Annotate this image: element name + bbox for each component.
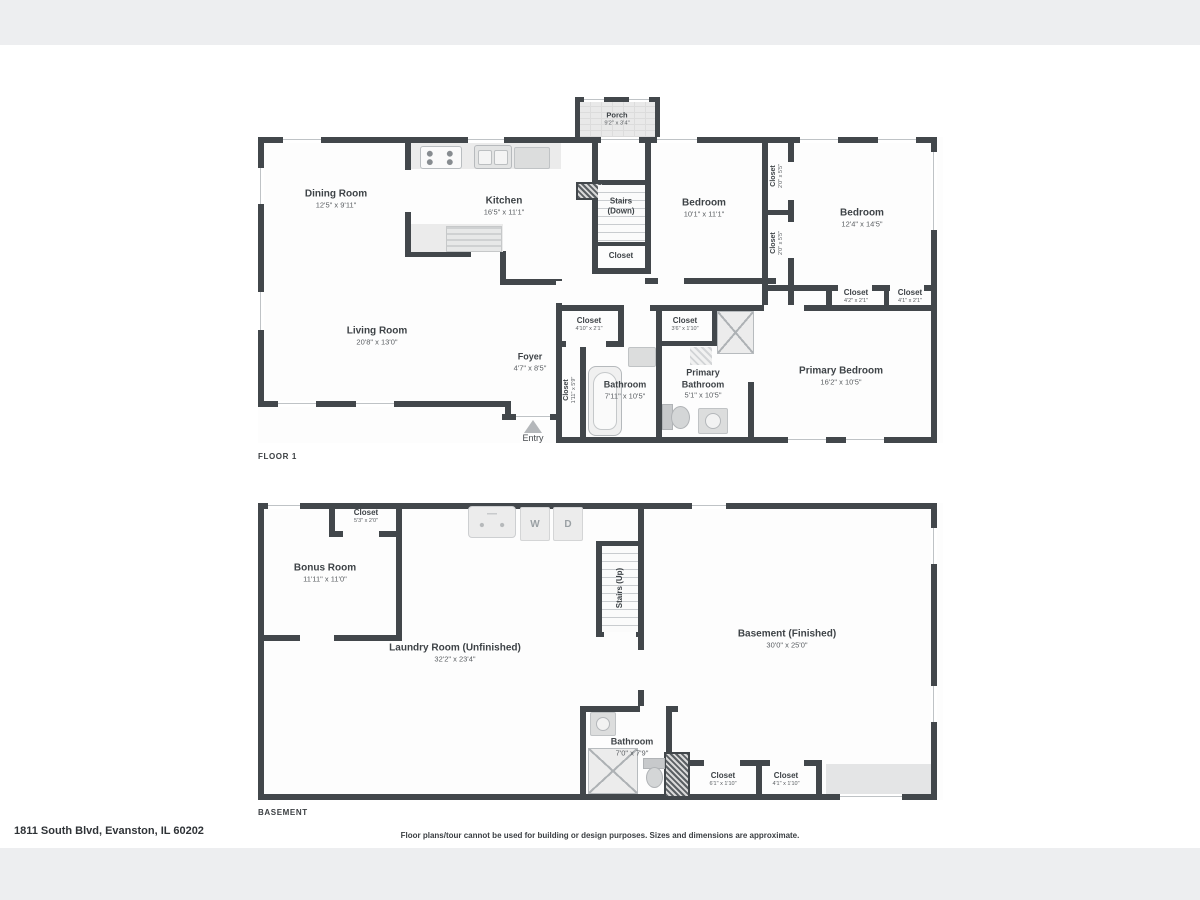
window <box>846 437 884 443</box>
sink-basin <box>596 717 610 731</box>
window <box>629 97 649 102</box>
window <box>788 437 826 443</box>
window <box>878 137 916 143</box>
room-label-bonus: Bonus Room 11'11" x 11'0" <box>294 562 356 585</box>
wall-segment <box>816 760 822 800</box>
room-label-bedroom2: Bedroom 12'4" x 14'5" <box>840 207 884 230</box>
window <box>931 686 937 722</box>
wall-segment <box>258 503 264 800</box>
wall-segment <box>756 766 762 800</box>
bathroom-vanity-icon <box>628 347 656 367</box>
room-label-foyer: Foyer 4'7" x 8'5" <box>514 351 547 372</box>
disclaimer-text: Floor plans/tour cannot be used for buil… <box>0 831 1200 840</box>
wall-segment <box>655 97 660 142</box>
room-label-primary-bathroom: Primary Bathroom 5'1" x 10'5" <box>672 367 734 400</box>
door-opening <box>788 162 794 200</box>
room-label-dining: Dining Room 12'5" x 9'11" <box>305 188 367 211</box>
door-opening <box>658 278 684 284</box>
hatched-wall <box>664 752 690 798</box>
window <box>931 528 937 564</box>
room-label-bath-closet: Closet 3'6" x 1'10" <box>671 316 698 334</box>
door-opening <box>604 632 636 637</box>
sink-bowl <box>478 150 492 165</box>
wall-segment <box>645 137 651 274</box>
wall-segment <box>556 279 562 443</box>
room-label-closet-b2a: Closet 4'2" x 2'1" <box>844 288 868 306</box>
floor-plan-page: { "address": "1811 South Blvd, Evanston,… <box>0 0 1200 900</box>
sink-icon <box>590 712 616 736</box>
wall-segment <box>258 794 937 800</box>
room-label-bedroom1: Bedroom 10'1" x 11'1" <box>682 197 726 220</box>
window <box>283 137 321 143</box>
wall-segment <box>592 268 651 274</box>
window <box>800 137 838 143</box>
entry-arrow-icon <box>524 420 542 433</box>
door-swing-hatch <box>690 347 712 365</box>
sink-bowl <box>494 150 508 165</box>
kitchen-sink-icon <box>474 145 512 169</box>
door-opening <box>788 222 794 258</box>
entry-label: Entry <box>522 433 543 443</box>
window <box>258 168 264 204</box>
room-label-hall-closet: Closet 4'10" x 2'1" <box>575 316 602 334</box>
laundry-sink-icon <box>468 506 516 538</box>
room-label-laundry: Laundry Room (Unfinished) 32'2" x 23'4" <box>389 642 521 665</box>
top-gray-band <box>0 0 1200 45</box>
room-label-bonus-closet: Closet 5'3" x 2'0" <box>354 508 378 526</box>
wall-segment <box>580 706 586 800</box>
washer-icon: W <box>520 507 550 541</box>
wall-segment <box>575 97 580 142</box>
bottom-gray-band <box>0 848 1200 900</box>
room-label-basement-closet-a: Closet 6'1" x 1'10" <box>709 771 736 789</box>
room-label-basement-bathroom: Bathroom 7'0" x 7'9" <box>611 736 654 757</box>
stove-icon <box>420 146 462 169</box>
room-label-closet-b1a: Closet 2'0" x 5'5" <box>769 164 785 188</box>
wall-segment <box>580 347 586 437</box>
door-opening <box>343 531 379 537</box>
appliance-icon <box>514 147 550 169</box>
window <box>657 137 697 143</box>
room-label-kitchen: Kitchen 16'5" x 11'1" <box>484 195 525 218</box>
room-label-closet-b2b: Closet 4'1" x 2'1" <box>898 288 922 306</box>
door-opening <box>638 650 644 690</box>
window <box>931 152 937 230</box>
door-opening <box>566 341 606 347</box>
window <box>356 401 394 407</box>
dryer-icon: D <box>553 507 583 541</box>
wall-segment <box>396 503 402 641</box>
door-opening <box>556 281 562 303</box>
basement-title: BASEMENT <box>258 808 308 817</box>
bathtub-icon <box>588 366 622 436</box>
room-label-closet-b1b: Closet 2'0" x 5'5" <box>769 231 785 255</box>
door-opening <box>300 635 334 641</box>
wall-segment <box>598 242 645 246</box>
room-label-primary-bedroom: Primary Bedroom 16'2" x 10'5" <box>799 365 883 388</box>
wall-segment <box>505 401 511 420</box>
window <box>278 401 316 407</box>
wall-segment <box>762 210 794 215</box>
sink-icon <box>698 408 728 434</box>
door-opening <box>748 352 754 382</box>
floor1-title: FLOOR 1 <box>258 452 297 461</box>
washer-label: W <box>530 519 539 530</box>
room-label-basement-closet-b: Closet 4'1" x 1'10" <box>772 771 799 789</box>
dishwasher-icon <box>446 226 502 252</box>
room-label-stairs-closet: Closet <box>609 251 633 261</box>
door-opening <box>770 760 804 766</box>
door-opening <box>640 706 666 712</box>
room-label-bathroom: Bathroom 7'11" x 10'5" <box>604 379 647 400</box>
shower-stall <box>717 311 754 354</box>
utility-pad <box>826 764 931 794</box>
door-opening <box>405 170 411 212</box>
window <box>840 794 902 800</box>
room-label-foyer-closet: Closet 1'11" x 5'9" <box>562 377 578 404</box>
toilet-bowl-icon <box>646 767 663 788</box>
porch-door <box>601 137 639 143</box>
door-opening <box>704 760 740 766</box>
toilet-bowl-icon <box>671 406 690 429</box>
window <box>268 503 300 509</box>
sink-basin <box>705 413 721 429</box>
room-label-stairs-up: Stairs (Up) <box>615 568 625 608</box>
window <box>258 292 264 330</box>
window <box>692 503 726 509</box>
wall-segment <box>656 341 716 346</box>
wall-segment <box>500 279 562 285</box>
dryer-label: D <box>564 519 571 530</box>
door-opening <box>764 305 804 311</box>
room-label-basement-finished: Basement (Finished) 30'0" x 25'0" <box>738 628 836 651</box>
room-label-porch: Porch 9'2" x 3'4" <box>604 110 629 127</box>
room-label-living: Living Room 20'8" x 13'0" <box>347 325 408 348</box>
door-opening <box>624 305 650 311</box>
room-label-stairs-down: Stairs (Down) <box>599 197 643 218</box>
window <box>584 97 604 102</box>
